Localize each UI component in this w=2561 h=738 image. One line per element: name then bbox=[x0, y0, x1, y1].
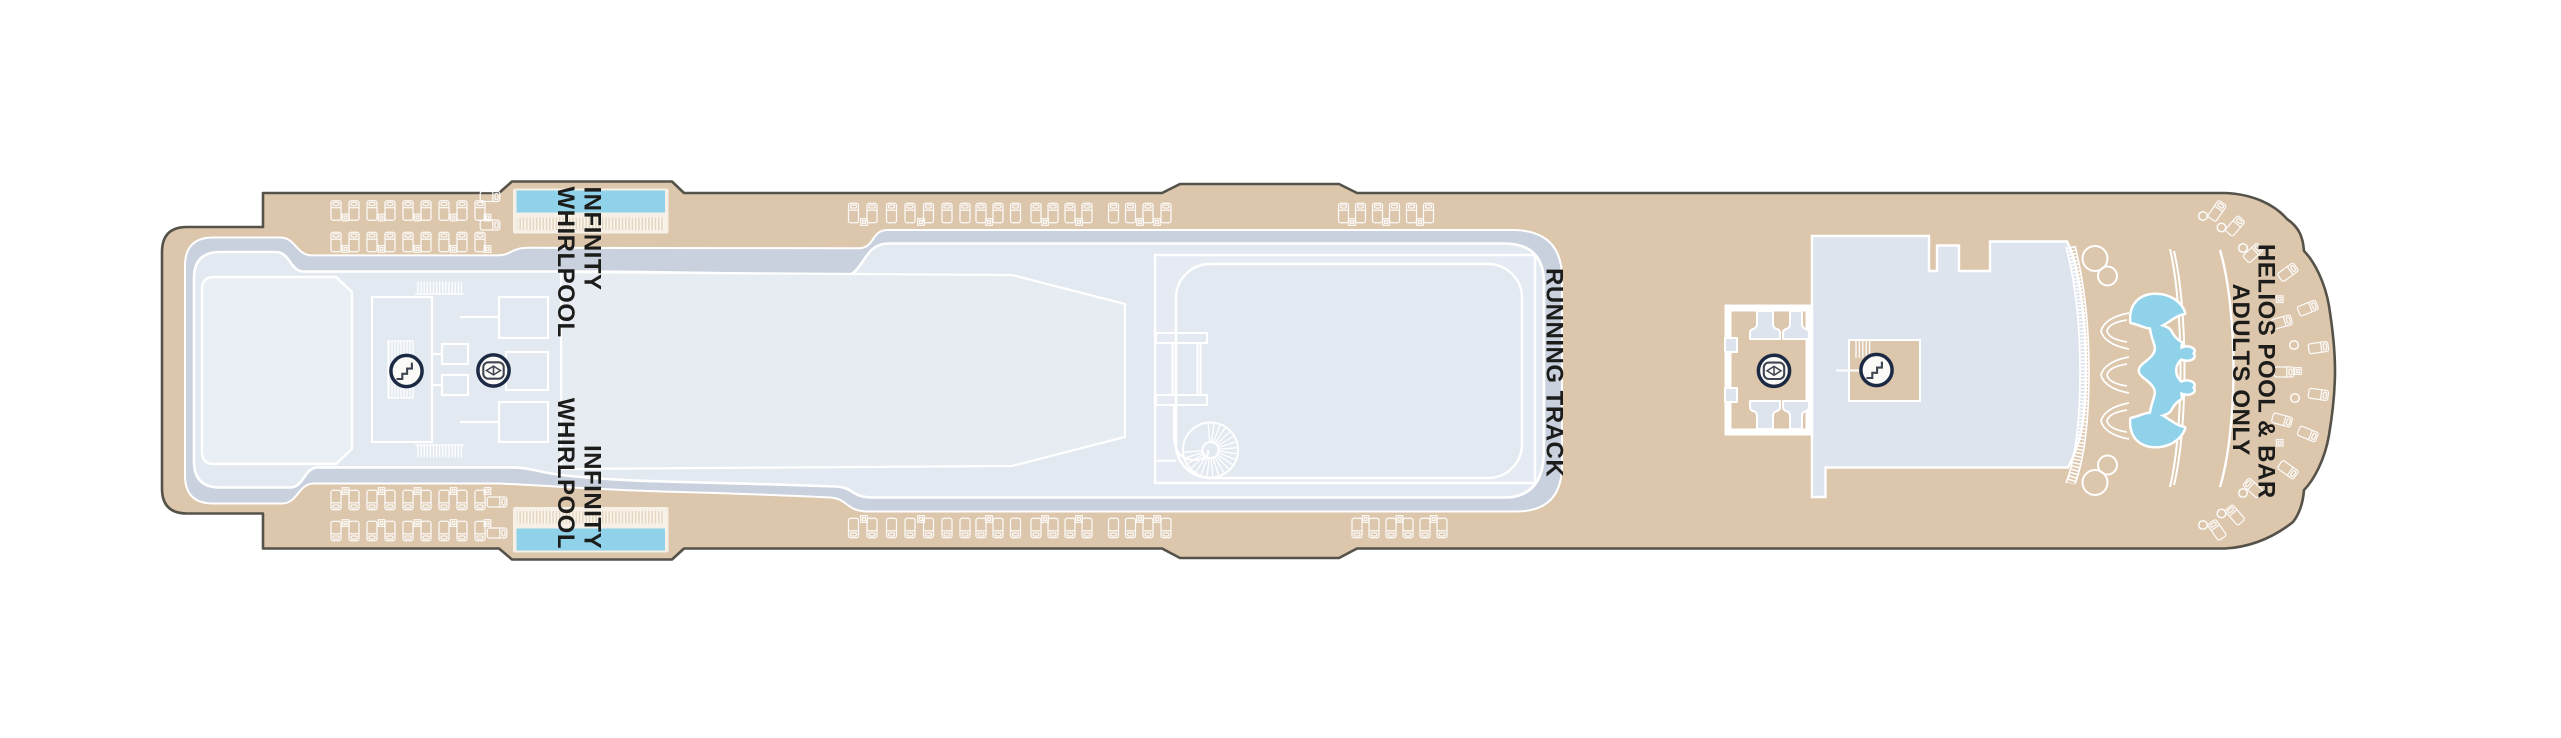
svg-text:INFINITY: INFINITY bbox=[579, 187, 606, 291]
svg-text:WHIRLPOOL: WHIRLPOOL bbox=[552, 187, 579, 338]
svg-text:INFINITY: INFINITY bbox=[579, 445, 606, 549]
svg-text:RUNNING TRACK: RUNNING TRACK bbox=[1541, 268, 1568, 477]
svg-text:HELIOS POOL & BAR: HELIOS POOL & BAR bbox=[2253, 244, 2280, 499]
svg-text:WHIRLPOOL: WHIRLPOOL bbox=[552, 398, 579, 549]
svg-text:ADULTS ONLY: ADULTS ONLY bbox=[2227, 284, 2254, 456]
